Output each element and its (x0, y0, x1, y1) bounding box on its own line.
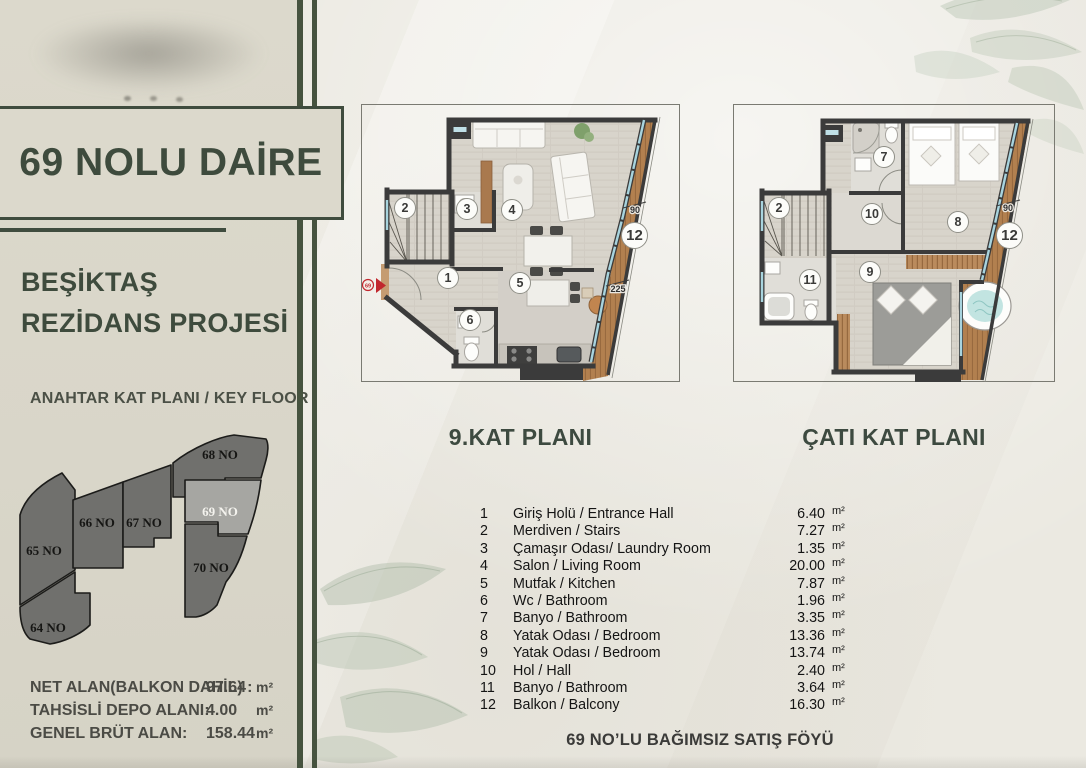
room-name: Yatak Odası / Bedroom (513, 628, 767, 645)
room-row: 6Wc / Bathroom1.96m² (480, 593, 860, 610)
room-no: 1 (480, 506, 513, 523)
room-badge-11: 11 (799, 269, 821, 291)
room-unit: m² (825, 607, 860, 624)
room-no: 10 (480, 663, 513, 680)
room-area: 3.35 (767, 610, 825, 627)
room-name: Wc / Bathroom (513, 593, 767, 610)
room-area: 16.30 (767, 697, 825, 714)
room-badge-2: 2 (768, 197, 790, 219)
dim-90: 90 (1003, 203, 1013, 213)
room-unit: m² (825, 503, 860, 520)
stove-icon (507, 346, 537, 364)
project-name-line2: REZİDANS PROJESİ (21, 303, 288, 344)
room-badge-12: 12 (621, 222, 648, 249)
room-area: 20.00 (767, 558, 825, 575)
room-row: 10Hol / Hall2.40m² (480, 663, 860, 680)
room-area: 3.64 (767, 680, 825, 697)
room-badge-7: 7 (873, 146, 895, 168)
room-unit: m² (825, 573, 860, 590)
room-badge-1: 1 (437, 267, 459, 289)
room-name: Yatak Odası / Bedroom (513, 645, 767, 662)
room-list: 1Giriş Holü / Entrance Hall6.40m² 2Merdi… (480, 506, 860, 715)
room-name: Merdiven / Stairs (513, 523, 767, 540)
project-name: BEŞİKTAŞ REZİDANS PROJESİ (21, 262, 288, 344)
sales-sheet-page: 69 NOLU DAİRE BEŞİKTAŞ REZİDANS PROJESİ … (0, 0, 1086, 768)
keyplan-heading: ANAHTAR KAT PLANI / KEY FLOOR (30, 390, 309, 408)
keyplan-label-69: 69 NO (202, 504, 238, 519)
dim-225: 225 (610, 284, 625, 294)
room-unit: m² (825, 520, 860, 537)
room-area: 13.36 (767, 628, 825, 645)
balcony-chair (582, 288, 593, 298)
keyplan-label-68: 68 NO (202, 447, 238, 462)
keyplan-label-64: 64 NO (30, 620, 66, 635)
title-underline (0, 228, 226, 232)
jacuzzi (959, 282, 1011, 330)
keyplan-label-65: 65 NO (26, 543, 62, 558)
room-name: Çamaşır Odası/ Laundry Room (513, 541, 767, 558)
toilet-icon (465, 343, 479, 361)
wardrobe (906, 255, 985, 269)
room-row: 12Balkon / Balcony16.30m² (480, 697, 860, 714)
room-badge-2: 2 (394, 197, 416, 219)
room-name: Salon / Living Room (513, 558, 767, 575)
room-area: 7.27 (767, 523, 825, 540)
toilet-icon (886, 127, 898, 143)
area-unit: m² (256, 722, 286, 745)
tv-unit (481, 161, 492, 223)
room-badge-8: 8 (947, 211, 969, 233)
room-area: 2.40 (767, 663, 825, 680)
room-area: 1.96 (767, 593, 825, 610)
room-row: 3Çamaşır Odası/ Laundry Room1.35m² (480, 541, 860, 558)
apartment-title-box: 69 NOLU DAİRE (0, 106, 344, 220)
area-row-depot: TAHSİSLİ DEPO ALANI: 4.00 m² (30, 699, 286, 722)
footer-text: 69 NO’LU BAĞIMSIZ SATIŞ FÖYÜ (400, 731, 1000, 750)
project-name-line1: BEŞİKTAŞ (21, 262, 288, 303)
area-label: TAHSİSLİ DEPO ALANI: (30, 699, 206, 722)
room-no: 12 (480, 697, 513, 714)
room-no: 9 (480, 645, 513, 662)
room-unit: m² (825, 660, 860, 677)
room-badge-9: 9 (859, 261, 881, 283)
room-area: 13.74 (767, 645, 825, 662)
room-row: 11Banyo / Bathroom3.64m² (480, 680, 860, 697)
keyplan-label-70: 70 NO (193, 560, 229, 575)
room-name: Giriş Holü / Entrance Hall (513, 506, 767, 523)
sink-icon (557, 347, 581, 362)
keyplan-label-66: 66 NO (79, 515, 115, 530)
plan-title-9th-floor: 9.KAT PLANI (361, 424, 680, 451)
room-badge-10: 10 (861, 203, 883, 225)
room-no: 4 (480, 558, 513, 575)
area-row-gross: GENEL BRÜT ALAN: 158.44 m² (30, 722, 286, 745)
sink-icon (855, 158, 871, 171)
area-label: GENEL BRÜT ALAN: (30, 722, 206, 745)
room-unit: m² (825, 642, 860, 659)
company-logo (34, 22, 264, 92)
room-no: 6 (480, 593, 513, 610)
area-unit: m² (256, 676, 286, 699)
room-no: 8 (480, 628, 513, 645)
room-badge-4: 4 (501, 199, 523, 221)
room-area: 1.35 (767, 541, 825, 558)
area-row-net: NET ALAN(BALKON DAHİL) : 97.64 m² (30, 676, 286, 699)
room-area: 6.40 (767, 506, 825, 523)
room-name: Banyo / Bathroom (513, 610, 767, 627)
room-unit: m² (825, 555, 860, 572)
room-badge-5: 5 (509, 272, 531, 294)
room-row: 4Salon / Living Room20.00m² (480, 558, 860, 575)
area-value: 97.64 (206, 676, 256, 699)
key-floor-plan: 68 NO 69 NO 67 NO 66 NO 65 NO 70 NO 64 N… (8, 420, 280, 666)
room-badge-3: 3 (456, 198, 478, 220)
room-no: 2 (480, 523, 513, 540)
area-label: NET ALAN(BALKON DAHİL) : (30, 676, 206, 699)
room-no: 5 (480, 576, 513, 593)
room-row: 8Yatak Odası / Bedroom13.36m² (480, 628, 860, 645)
room-no: 3 (480, 541, 513, 558)
room-name: Balkon / Balcony (513, 697, 767, 714)
logo-dots (124, 96, 131, 101)
plan-title-roof-floor: ÇATI KAT PLANI (733, 424, 1055, 451)
toilet-icon (805, 304, 817, 320)
room-no: 11 (480, 680, 513, 697)
area-value: 158.44 (206, 722, 256, 745)
room-row: 7Banyo / Bathroom3.35m² (480, 610, 860, 627)
room-unit: m² (825, 590, 860, 607)
bedroom-8-beds (909, 123, 999, 185)
room-name: Banyo / Bathroom (513, 680, 767, 697)
sink-icon (765, 262, 780, 274)
room-row: 2Merdiven / Stairs7.27m² (480, 523, 860, 540)
room-name: Hol / Hall (513, 663, 767, 680)
room-name: Mutfak / Kitchen (513, 576, 767, 593)
room-unit: m² (825, 538, 860, 555)
room-no: 7 (480, 610, 513, 627)
room-unit: m² (825, 694, 860, 711)
room-badge-6: 6 (459, 309, 481, 331)
room-row: 5Mutfak / Kitchen7.87m² (480, 576, 860, 593)
area-value: 4.00 (206, 699, 256, 722)
bedroom-9-bed (873, 283, 951, 365)
dim-90: 90 (630, 205, 640, 215)
keyplan-unit-67 (123, 465, 171, 547)
room-unit: m² (825, 625, 860, 642)
apartment-title: 69 NOLU DAİRE (13, 141, 322, 185)
area-summary: NET ALAN(BALKON DAHİL) : 97.64 m² TAHSİS… (30, 676, 286, 745)
room-row: 1Giriş Holü / Entrance Hall6.40m² (480, 506, 860, 523)
room-unit: m² (825, 677, 860, 694)
room-badge-12: 12 (996, 222, 1023, 249)
area-unit: m² (256, 699, 286, 722)
room-area: 7.87 (767, 576, 825, 593)
entry-marker-number: 69 (365, 283, 371, 289)
keyplan-label-67: 67 NO (126, 515, 162, 530)
room-row: 9Yatak Odası / Bedroom13.74m² (480, 645, 860, 662)
